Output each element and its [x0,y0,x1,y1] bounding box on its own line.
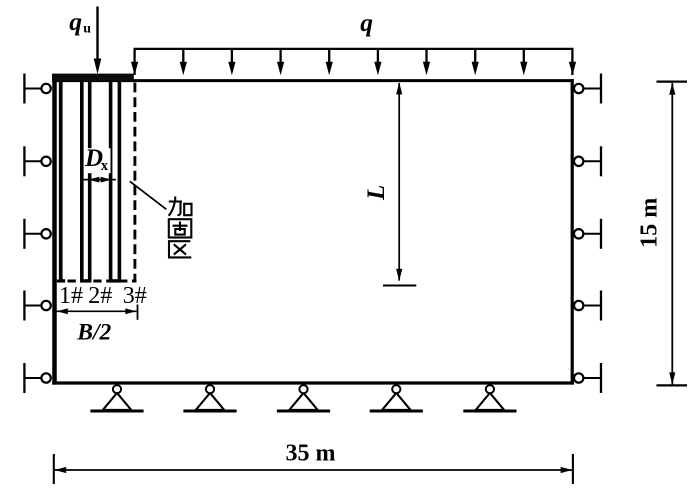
svg-text:2#: 2# [88,283,112,309]
svg-text:L: L [363,185,390,201]
svg-text:u: u [83,22,91,37]
svg-text:1#: 1# [59,283,83,309]
svg-text:B/2: B/2 [76,320,111,346]
svg-text:q: q [360,8,373,37]
svg-text:x: x [101,158,109,174]
svg-text:q: q [69,7,82,36]
svg-text:3#: 3# [123,283,147,309]
svg-text:35 m: 35 m [286,440,336,466]
svg-text:15 m: 15 m [636,198,662,248]
